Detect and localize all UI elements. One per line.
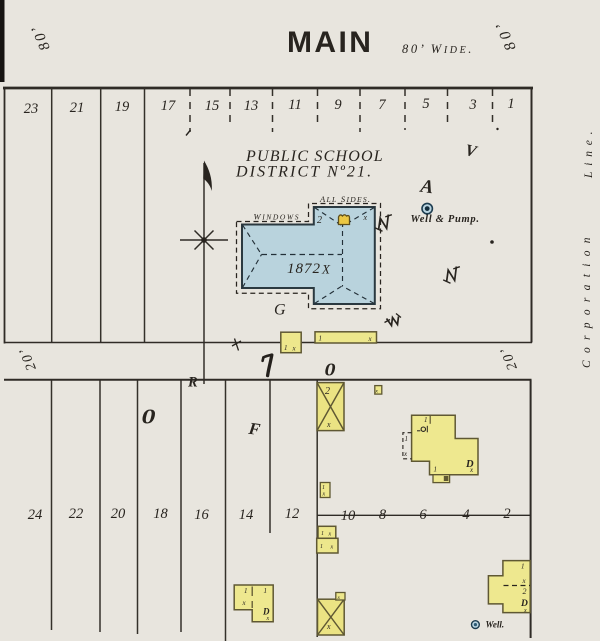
svg-text:22: 22 xyxy=(69,506,84,522)
svg-text:Well.: Well. xyxy=(486,620,505,630)
svg-text:21: 21 xyxy=(70,100,85,116)
svg-text:x: x xyxy=(375,389,379,395)
svg-text:x: x xyxy=(337,595,341,601)
svg-text:x: x xyxy=(328,532,332,538)
svg-text:1: 1 xyxy=(284,344,288,352)
svg-text:1872: 1872 xyxy=(287,261,321,277)
svg-text:24: 24 xyxy=(28,507,43,523)
svg-text:Well & Pump.: Well & Pump. xyxy=(411,214,480,225)
svg-text:G: G xyxy=(274,302,286,319)
svg-text:1: 1 xyxy=(424,416,428,424)
svg-text:2: 2 xyxy=(317,215,322,226)
svg-text:80’ WIDE.: 80’ WIDE. xyxy=(402,42,474,56)
svg-text:PUBLIC SCHOOL: PUBLIC SCHOOL xyxy=(245,148,384,165)
svg-text:1: 1 xyxy=(320,544,323,550)
svg-text:5: 5 xyxy=(422,96,429,112)
svg-text:13: 13 xyxy=(244,98,259,114)
svg-text:4: 4 xyxy=(462,507,469,523)
svg-text:19: 19 xyxy=(115,99,130,115)
svg-text:12: 12 xyxy=(285,506,300,522)
svg-text:10: 10 xyxy=(341,508,356,524)
svg-text:Line.: Line. xyxy=(583,126,595,179)
svg-text:15: 15 xyxy=(205,98,220,114)
svg-text:2: 2 xyxy=(325,386,330,397)
svg-text:0: 0 xyxy=(142,405,157,429)
svg-text:1: 1 xyxy=(321,531,324,537)
svg-text:23: 23 xyxy=(24,101,39,117)
svg-text:1: 1 xyxy=(264,587,268,595)
svg-text:1: 1 xyxy=(405,435,409,443)
svg-text:WINDOWS: WINDOWS xyxy=(254,212,301,222)
svg-text:x: x xyxy=(523,608,527,614)
svg-text:1: 1 xyxy=(244,587,248,595)
svg-text:x: x xyxy=(322,492,326,498)
svg-text:17: 17 xyxy=(161,98,176,114)
svg-text:D: D xyxy=(262,607,270,617)
svg-text:ALL SIDES.: ALL SIDES. xyxy=(319,194,371,204)
svg-text:16: 16 xyxy=(194,507,209,523)
svg-text:x: x xyxy=(363,213,368,222)
svg-text:2: 2 xyxy=(503,506,510,522)
svg-text:7: 7 xyxy=(378,97,386,113)
svg-text:x: x xyxy=(330,545,334,551)
svg-text:1: 1 xyxy=(322,485,325,491)
svg-text:MAIN: MAIN xyxy=(287,26,373,59)
svg-text:DISTRICT Nº21.: DISTRICT Nº21. xyxy=(235,164,373,181)
svg-text:A: A xyxy=(418,176,434,199)
svg-text:0: 0 xyxy=(325,360,336,380)
svg-text:14: 14 xyxy=(239,507,254,523)
svg-text:x: x xyxy=(326,420,331,429)
svg-text:11: 11 xyxy=(288,97,301,113)
svg-text:1: 1 xyxy=(319,335,323,343)
svg-text:9: 9 xyxy=(334,97,342,113)
svg-text:6: 6 xyxy=(419,507,427,523)
svg-text:1: 1 xyxy=(507,96,514,112)
svg-text:R: R xyxy=(187,375,198,391)
svg-text:x: x xyxy=(326,622,331,631)
svg-text:1: 1 xyxy=(521,563,525,571)
svg-text:Corporation: Corporation xyxy=(581,230,593,368)
svg-text:20: 20 xyxy=(111,506,126,522)
svg-text:18: 18 xyxy=(153,506,168,522)
svg-text:8: 8 xyxy=(379,507,387,523)
svg-text:X: X xyxy=(321,262,331,277)
svg-text:3: 3 xyxy=(468,97,476,113)
svg-text:1: 1 xyxy=(434,466,438,474)
svg-text:2: 2 xyxy=(523,587,527,596)
svg-text:x: x xyxy=(266,616,270,622)
